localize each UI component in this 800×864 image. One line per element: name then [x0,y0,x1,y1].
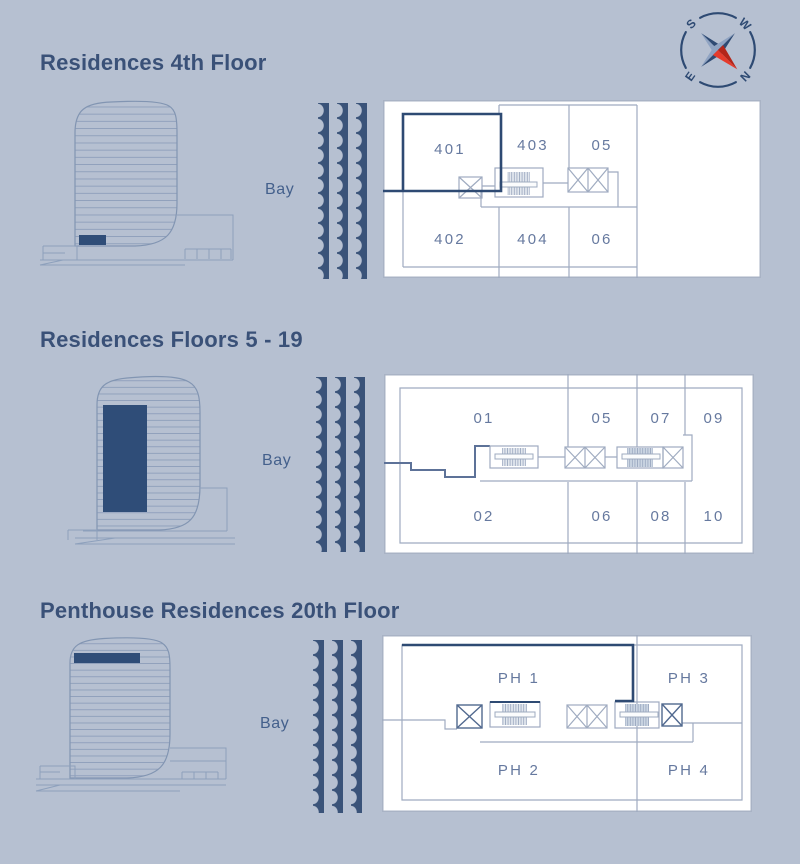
unit-label[interactable]: 401 [434,141,466,158]
floor-plan-floors-5-19: 01 05 07 09 02 06 08 10 [384,374,754,554]
water-wave-stripe [337,103,348,279]
compass-north-label: N [737,68,753,84]
water-wave-stripe [354,377,365,552]
compass-south-label: S [683,16,699,32]
bay-label: Bay [265,181,294,199]
unit-label[interactable]: 06 [591,508,612,525]
unit-label[interactable]: 05 [591,137,612,154]
section-title-penthouse: Penthouse Residences 20th Floor [40,598,400,624]
compass-star [701,33,737,69]
floor-plan-4th-floor: 401 403 05 402 404 06 [383,100,761,278]
unit-label[interactable]: 02 [473,508,494,525]
bay-label: Bay [262,452,291,470]
unit-label[interactable]: PH 1 [498,670,540,687]
unit-label[interactable]: 08 [650,508,671,525]
podium [200,488,227,531]
water-wave-stripe [351,640,362,813]
plan-panel [384,101,761,278]
unit-label[interactable]: 07 [650,410,671,427]
bay-water-waves [313,640,362,813]
water-wave-stripe [318,103,329,279]
water-wave-stripe [313,640,324,813]
highlighted-floor-marker [74,653,140,663]
bay-water-waves [316,377,365,552]
compass-west-label: W [736,15,754,33]
unit-label[interactable]: PH 2 [498,762,540,779]
compass-icon: S W E N [670,4,766,96]
unit-label[interactable]: 10 [703,508,724,525]
unit-label[interactable]: PH 3 [668,670,710,687]
building-elevation-floors-5-19 [55,368,245,558]
building-elevation-4th-floor [35,93,235,283]
unit-label[interactable]: 09 [703,410,724,427]
highlighted-floor-marker [103,405,147,512]
unit-label[interactable]: 06 [591,231,612,248]
unit-label[interactable]: PH 4 [668,762,710,779]
unit-label[interactable]: 01 [473,410,494,427]
section-title-4th-floor: Residences 4th Floor [40,50,267,76]
water-wave-stripe [316,377,327,552]
section-title-floors-5-19: Residences Floors 5 - 19 [40,327,303,353]
unit-label[interactable]: 404 [517,231,549,248]
bay-water-waves [318,103,367,279]
bay-label: Bay [260,715,289,733]
unit-label[interactable]: 05 [591,410,612,427]
tower-outline [75,101,177,246]
building-elevation-penthouse [30,631,230,821]
unit-label[interactable]: 403 [517,137,549,154]
water-wave-stripe [335,377,346,552]
water-wave-stripe [356,103,367,279]
highlighted-floor-marker [79,235,106,245]
water-wave-stripe [332,640,343,813]
unit-label[interactable]: 402 [434,231,466,248]
floor-plan-penthouse: PH 1 PH 3 PH 2 PH 4 [382,635,752,812]
compass-east-label: E [682,69,698,84]
